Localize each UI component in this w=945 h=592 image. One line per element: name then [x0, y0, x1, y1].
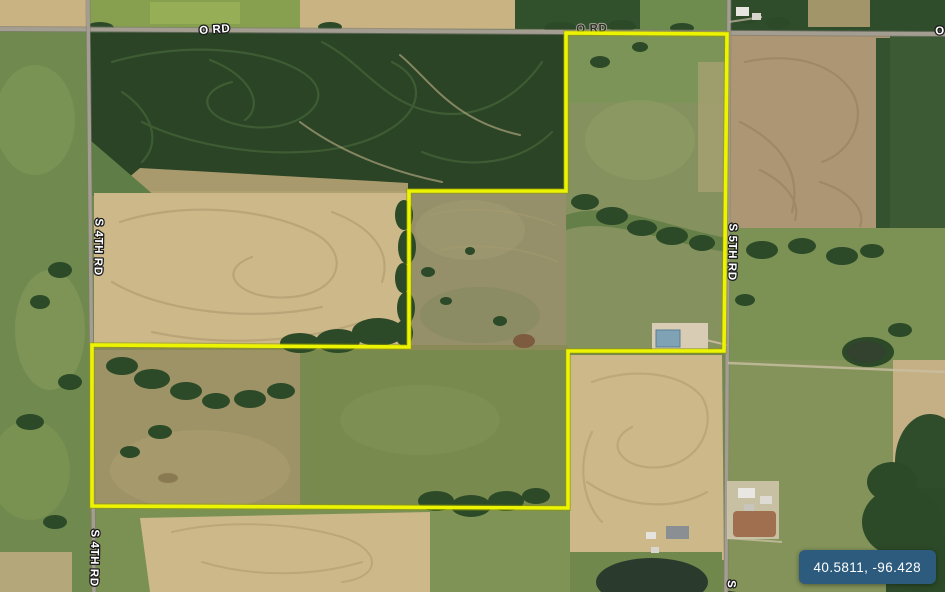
shed	[651, 547, 659, 553]
gray-barn	[666, 526, 689, 539]
coordinates-text: 40.5811, -96.428	[814, 560, 922, 575]
field-topright-tanpatch	[808, 0, 870, 27]
field-bottom-green	[430, 510, 570, 592]
field-bottom-tan	[140, 512, 430, 592]
field-right-darkgreen	[890, 33, 945, 230]
house	[738, 488, 755, 498]
road-label-s4th-lower: S 4TH RD	[88, 529, 101, 586]
house	[736, 7, 749, 16]
field-mottle	[340, 385, 500, 455]
road-label-o-rd-east: O RD	[935, 24, 945, 37]
field-mottle	[110, 430, 290, 510]
field-top-green-light	[150, 2, 240, 24]
field-parcel-ur-tanstrip	[698, 62, 727, 192]
barn-blue-roof	[656, 330, 680, 347]
pond-mud	[513, 334, 535, 348]
dirt-lot	[733, 511, 776, 537]
road-label-s5th-lower: S 5TH RD	[723, 580, 737, 592]
pond-small	[158, 473, 178, 483]
field-west-tan-bottom	[0, 552, 72, 592]
road-label-s4th-upper: S 4TH RD	[92, 218, 105, 275]
coordinates-badge: 40.5811, -96.428	[799, 550, 937, 584]
shed	[760, 496, 772, 504]
pond-right	[846, 341, 886, 363]
field-dark-terraced	[90, 31, 568, 191]
field-mottle	[15, 270, 85, 390]
shed	[744, 504, 754, 511]
field-mottle	[585, 100, 695, 180]
map-canvas: O RD O RD O RD S 4TH RD S 4TH RD S 5TH R…	[0, 0, 945, 592]
treeline-right	[876, 38, 892, 230]
field-east-tan	[570, 355, 724, 560]
shed	[646, 532, 656, 539]
road-label-o-rd-west: O RD	[199, 23, 231, 37]
satellite-map[interactable]: O RD O RD O RD S 4TH RD S 4TH RD S 5TH R…	[0, 0, 945, 592]
shed	[752, 13, 761, 20]
